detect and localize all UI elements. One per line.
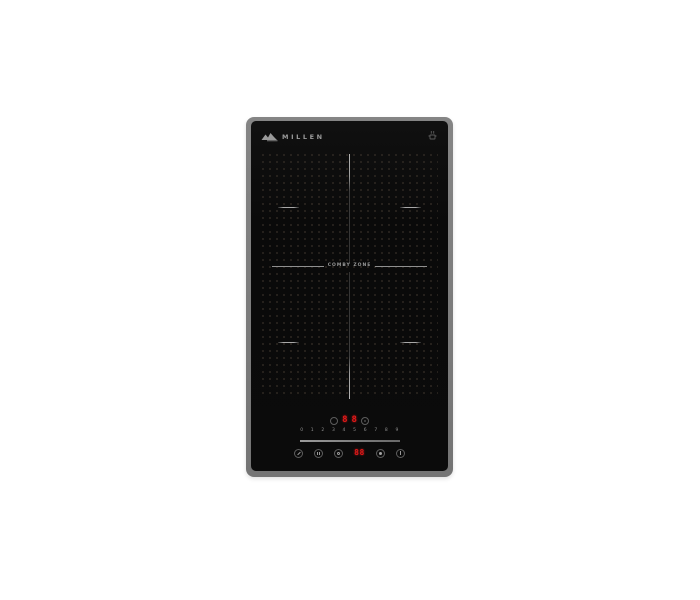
zone-display-row: 8 8 (251, 415, 448, 426)
glass-surface: MILLEN COMBY ZONE 8 8 (251, 121, 448, 471)
comby-zone-divider: COMBY ZONE (272, 264, 427, 269)
zone-mark-left-upper (278, 207, 299, 208)
touch-button-row: 88 (251, 447, 448, 459)
zone-divider-lower (349, 272, 350, 399)
pan-mark-icon (364, 420, 366, 422)
pause-icon (317, 452, 320, 455)
timer-button[interactable] (334, 449, 343, 458)
brand-logo-icon (261, 132, 278, 142)
comby-line-left (272, 266, 324, 267)
comby-line-right (375, 266, 427, 267)
zone-mark-right-lower (400, 342, 421, 343)
zone-mark-left-lower (278, 342, 299, 343)
brand-name: MILLEN (282, 134, 325, 141)
pan-indicator-icon (428, 130, 437, 142)
power-slider-scale[interactable]: 0 1 2 3 4 5 6 7 8 9 (251, 429, 448, 434)
zone-divider-upper (349, 154, 350, 264)
pause-button[interactable] (314, 449, 323, 458)
boost-button[interactable] (376, 449, 385, 458)
power-icon (400, 451, 401, 455)
zone-right-power-display: 8 (352, 416, 357, 425)
zone-select-right-button[interactable] (361, 417, 369, 425)
comby-zone-label: COMBY ZONE (328, 264, 372, 269)
key-icon (297, 451, 301, 455)
induction-hob: MILLEN COMBY ZONE 8 8 (246, 117, 453, 477)
zone-left-power-display: 8 (342, 416, 347, 425)
lock-button[interactable] (294, 449, 303, 458)
power-slider-track[interactable] (300, 440, 400, 442)
power-button[interactable] (396, 449, 405, 458)
zone-select-left-button[interactable] (330, 417, 338, 425)
dot-grid-surface (262, 154, 438, 399)
zone-mark-right-upper (400, 207, 421, 208)
brand-logo: MILLEN (261, 132, 325, 142)
clock-icon (337, 452, 340, 455)
timer-display: 88 (354, 449, 365, 457)
boost-dot-icon (379, 452, 382, 455)
product-image-canvas: { "product": { "brand": "MILLEN", "zone_… (0, 0, 700, 600)
